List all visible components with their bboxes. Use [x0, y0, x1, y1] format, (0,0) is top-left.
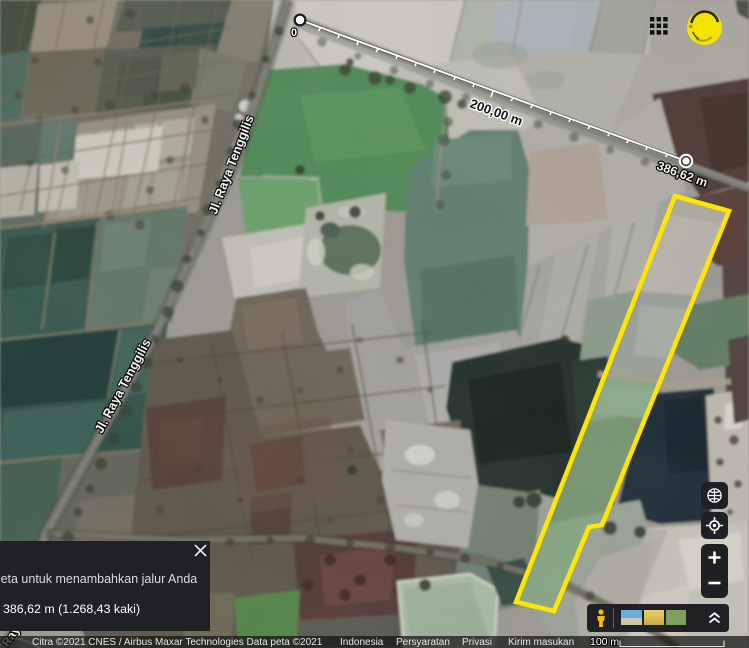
svg-text:0: 0 [291, 27, 297, 39]
